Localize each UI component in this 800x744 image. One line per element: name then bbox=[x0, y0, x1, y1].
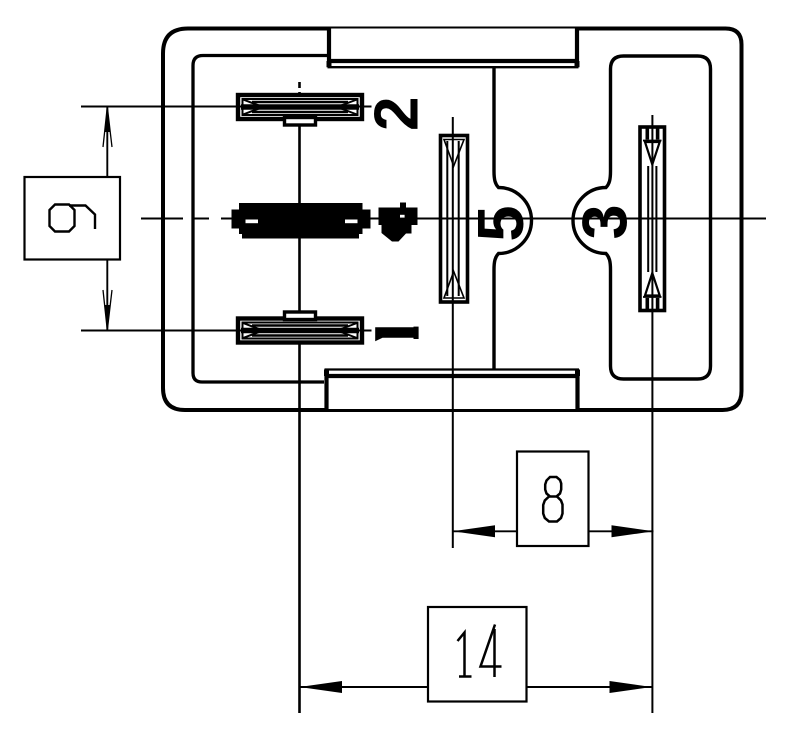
svg-text:2: 2 bbox=[363, 97, 432, 131]
svg-text:5: 5 bbox=[464, 205, 537, 241]
svg-text:3: 3 bbox=[571, 204, 641, 239]
